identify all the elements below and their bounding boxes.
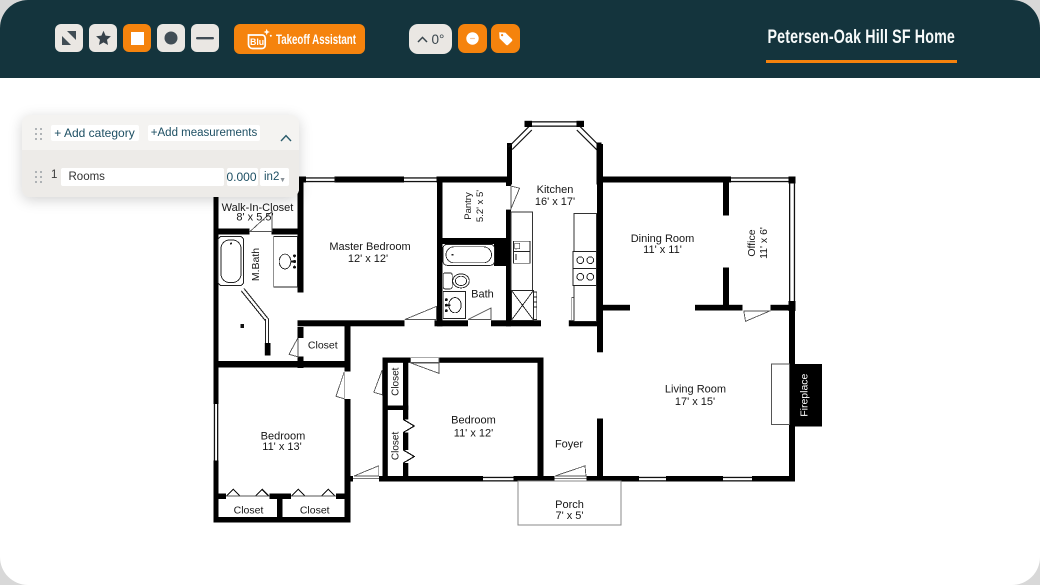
svg-text:11' x 6': 11' x 6' <box>758 227 770 259</box>
svg-text:Closet: Closet <box>390 367 401 396</box>
svg-text:Living Room: Living Room <box>665 384 726 396</box>
svg-text:16' x 17': 16' x 17' <box>535 196 575 208</box>
svg-text:Bedroom: Bedroom <box>451 415 496 427</box>
svg-text:Foyer: Foyer <box>555 439 583 451</box>
svg-text:M.Bath: M.Bath <box>250 248 262 281</box>
svg-text:Kitchen: Kitchen <box>537 184 574 196</box>
svg-text:Office: Office <box>746 229 758 256</box>
svg-text:Pantry: Pantry <box>463 192 474 220</box>
svg-text:Bath: Bath <box>471 289 494 301</box>
svg-text:12' x 12': 12' x 12' <box>348 253 388 265</box>
svg-text:Closet: Closet <box>234 504 264 516</box>
svg-text:7' x 5': 7' x 5' <box>555 510 583 522</box>
svg-text:Closet: Closet <box>308 340 338 352</box>
svg-text:Closet: Closet <box>300 504 330 516</box>
svg-text:17' x 15': 17' x 15' <box>675 396 715 408</box>
svg-text:11' x 13': 11' x 13' <box>262 441 301 453</box>
svg-text:Blu: Blu <box>250 37 264 47</box>
svg-text:11' x 12': 11' x 12' <box>454 428 493 440</box>
svg-text:Fireplace: Fireplace <box>799 373 811 416</box>
svg-text:5.2' x 5': 5.2' x 5' <box>475 190 486 222</box>
svg-text:Master Bedroom: Master Bedroom <box>329 241 410 253</box>
svg-text:8' x 5.5': 8' x 5.5' <box>236 212 273 224</box>
svg-text:11' x 11': 11' x 11' <box>643 244 682 256</box>
svg-text:Closet: Closet <box>390 432 401 461</box>
